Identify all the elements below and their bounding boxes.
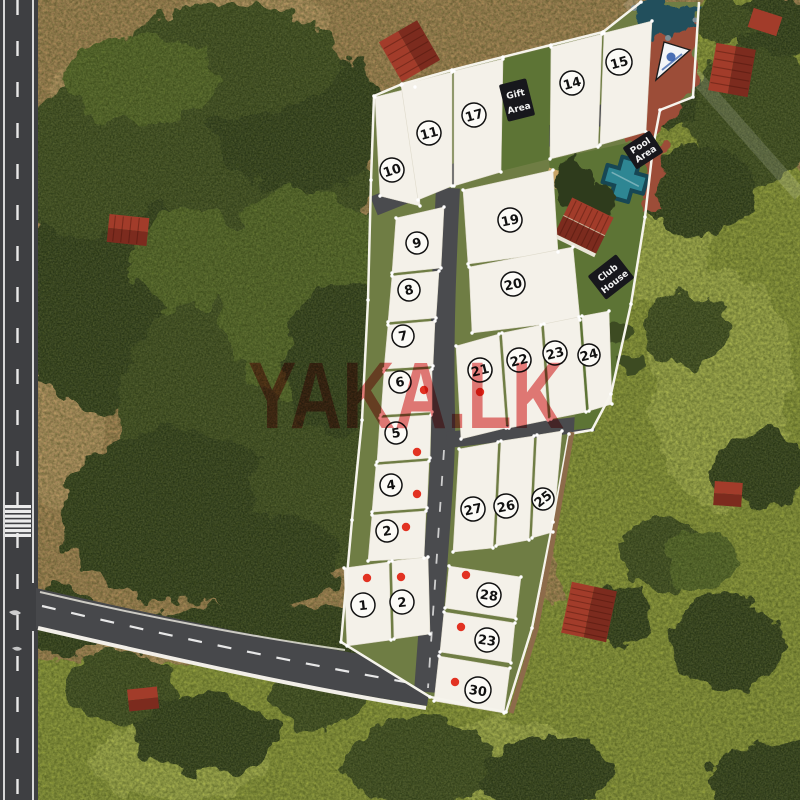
plot [496,436,534,546]
svg-text:30: 30 [468,683,488,700]
hut-left [107,214,150,246]
hut-top-right [708,43,756,97]
plot [600,21,652,145]
hut-right [713,481,743,507]
sold-marker-dot [363,574,371,582]
crosswalk [5,505,31,537]
svg-text:2: 2 [397,595,408,611]
svg-text:1: 1 [358,598,369,614]
left-road [0,0,38,800]
svg-text:23: 23 [477,633,497,650]
hut-bottom-left [127,686,159,711]
svg-text:28: 28 [479,588,499,605]
plot [550,34,602,159]
sold-marker-dot [397,573,405,581]
sold-marker-dot [462,571,470,579]
sold-marker-dot [451,678,459,686]
watermark: YAKA.LK [248,343,564,449]
model-photo: 1011171415192098765421221222324272625282… [0,0,800,800]
sold-marker-dot [413,448,421,456]
sold-marker-dot [413,490,421,498]
site-plan-svg: 1011171415192098765421221222324272625282… [0,0,800,800]
sold-marker-dot [402,523,410,531]
sold-marker-dot [457,623,465,631]
